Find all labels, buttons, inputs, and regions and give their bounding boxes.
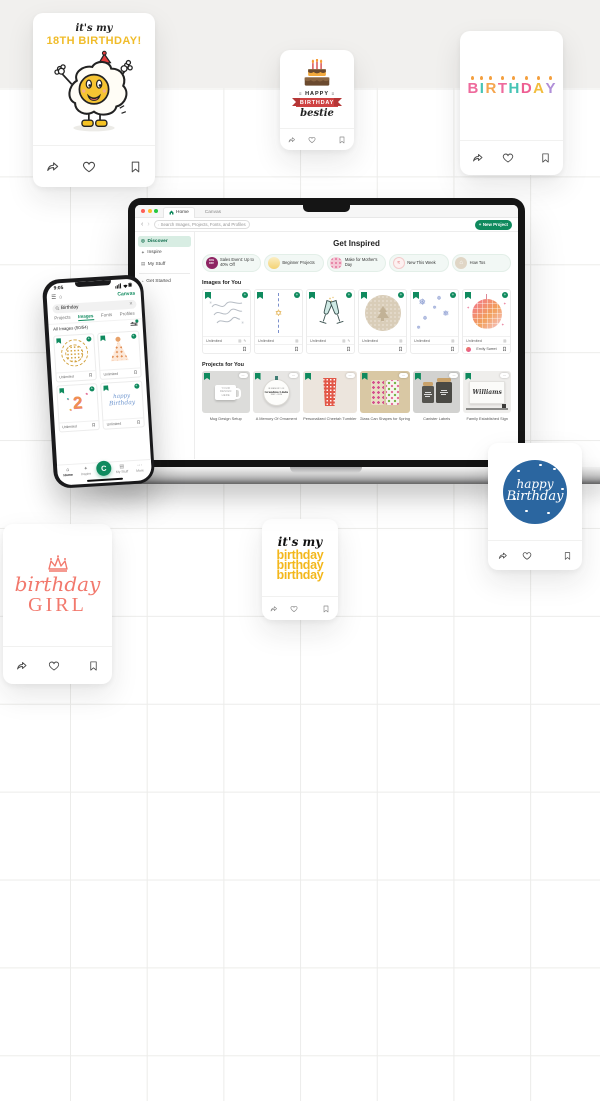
image-card-champagne-glasses[interactable]: + — [306, 289, 355, 354]
bookmark-icon[interactable] — [346, 346, 351, 352]
mug-art: YOUR DESIGN HERE — [215, 385, 236, 400]
crown-doodle — [45, 555, 71, 572]
phone-image-card-number-two[interactable]: + 2●●● Unlimited — [56, 383, 100, 432]
results-count-label: All Images (50/54) — [53, 324, 88, 331]
beginner-icon — [268, 257, 280, 269]
flower-icon — [330, 257, 342, 269]
search-input[interactable]: Search Images, Projects, Fonts, and Prof… — [154, 220, 250, 229]
birthday-cake-illustration — [296, 59, 338, 89]
bookmark-icon[interactable] — [450, 346, 455, 352]
add-icon[interactable]: + — [346, 292, 352, 298]
disco-ball-art: ✦✦✦ — [471, 297, 503, 329]
bestie-word-happy: ≡ HAPPY ≡ — [299, 91, 335, 97]
egg-card-actions — [33, 145, 155, 187]
close-window-icon — [141, 209, 145, 213]
share-icon[interactable] — [46, 160, 60, 174]
sidebar-item-my-stuff[interactable]: ▤My Stuff — [138, 259, 191, 270]
girl-card-line1: birthday — [15, 574, 101, 594]
tab-images[interactable]: Images — [78, 313, 94, 321]
ornate-script-art: ✳✳ — [208, 298, 246, 328]
add-icon[interactable]: + — [131, 333, 136, 338]
canvas-link[interactable]: Canvas — [117, 290, 135, 297]
back-arrow-icon[interactable]: ‹ — [141, 221, 143, 228]
gold-mandala-art — [60, 339, 89, 368]
ornament-art: IN MEMORY OF Grandma Linda 1942 - 2024 — [263, 379, 290, 406]
access-flag-icon — [255, 373, 261, 380]
access-flag-icon — [465, 373, 471, 380]
bookmark-icon[interactable] — [88, 372, 92, 377]
yellow-card-line1: it's my — [278, 535, 322, 549]
candles-card-art: B I R T H D A Y — [460, 31, 563, 140]
access-flag-icon — [415, 373, 421, 380]
sidebar-item-get-started[interactable]: ◔Get Started — [138, 277, 191, 288]
chip-sales-event[interactable]: 40%OFF Sales Event: Up to 40% Off — [202, 254, 261, 272]
project-badge: ⋯ — [500, 373, 509, 378]
nav-home[interactable]: ⌂Home — [60, 467, 76, 477]
new-scribble-icon: ≈ — [393, 257, 405, 269]
layer-edit-icons: ▥ ✎ — [342, 339, 351, 343]
project-card-glass-cans[interactable]: ⋯ Glass Can Shapes for Spring — [360, 371, 410, 421]
share-icon[interactable] — [16, 660, 28, 672]
inspiration-chips-row: 40%OFF Sales Event: Up to 40% Off Beginn… — [202, 254, 511, 272]
svg-text:✳: ✳ — [241, 320, 245, 325]
chip-new-this-week[interactable]: ≈ New This Week — [389, 254, 448, 272]
add-icon[interactable]: + — [134, 383, 139, 388]
share-icon[interactable] — [270, 605, 278, 613]
status-time: 9:05 — [54, 286, 64, 292]
access-flag-icon — [103, 385, 108, 391]
blue-card-actions — [488, 540, 582, 570]
add-icon[interactable]: + — [450, 292, 456, 298]
access-flag-icon — [56, 338, 61, 344]
heart-icon[interactable] — [522, 551, 532, 561]
image-card-star-banner[interactable]: + ✡ Unlimited▥ — [254, 289, 303, 354]
bookmark-icon[interactable] — [338, 136, 346, 144]
minimize-window-icon — [148, 209, 152, 213]
contributor-name: Emily Sweet — [476, 347, 496, 351]
heart-icon[interactable] — [502, 152, 514, 164]
laptop-display: Home Canvas ‹ › Search Images, Projects,… — [135, 205, 518, 460]
access-flag-icon — [59, 388, 64, 394]
bookmark-icon[interactable] — [136, 420, 140, 425]
bookmark-icon[interactable] — [563, 551, 572, 561]
card-happy-birthday-bestie: ≡ HAPPY ≡ BIRTHDAY bestie — [280, 50, 354, 150]
heart-icon[interactable] — [48, 660, 60, 672]
star-of-david-art: ✡ — [275, 308, 283, 319]
share-icon[interactable] — [288, 136, 296, 144]
access-flag-icon — [309, 292, 315, 299]
access-flag-icon — [100, 335, 105, 341]
girl-card-actions — [3, 646, 112, 684]
laptop-main-content: Get Inspired 40%OFF Sales Event: Up to 4… — [195, 232, 518, 459]
project-badge: ⋯ — [399, 373, 408, 378]
project-badge: ⋯ — [289, 373, 298, 378]
heart-icon[interactable] — [82, 160, 96, 174]
image-card-ornate-script[interactable]: + ✳✳ — [202, 289, 251, 354]
bestie-word-birthday: BIRTHDAY — [296, 98, 338, 107]
phone-screen: 9:05 ☰ ⌂ Canvas Birthday ✕ Projects Imag… — [45, 278, 151, 485]
get-inspired-title: Get Inspired — [202, 239, 511, 248]
clear-search-icon[interactable]: ✕ — [129, 301, 133, 307]
home-icon: ⌂ — [66, 468, 69, 473]
access-flag-icon — [257, 292, 263, 299]
share-icon[interactable] — [472, 152, 484, 164]
compass-icon: ◎ — [141, 239, 145, 244]
folder-icon: ▤ — [141, 262, 145, 267]
browser-nav-row: ‹ › Search Images, Projects, Fonts, and … — [135, 218, 518, 232]
tumbler-art — [322, 378, 337, 406]
laptop-camera-notch — [303, 205, 350, 212]
layer-icons: ▥ — [451, 339, 455, 343]
project-card-cheetah-tumbler[interactable]: ⋯ Personalized Cheetah Tumbler — [303, 371, 356, 421]
card-birthday-candle-letters: B I R T H D A Y — [460, 31, 563, 175]
projects-for-you-title: Projects for You — [202, 362, 511, 368]
maximize-window-icon — [154, 209, 158, 213]
access-flag-icon — [361, 292, 367, 299]
nav-inspire[interactable]: ✦Inspire — [78, 466, 94, 476]
home-icon[interactable]: ⌂ — [59, 295, 62, 300]
champagne-glasses-art — [314, 296, 348, 330]
nav-more[interactable]: ⋯More — [132, 463, 148, 473]
sidebar-divider — [139, 273, 190, 274]
chip-how-tos[interactable]: ⌂ How Tos — [452, 254, 511, 272]
new-project-fab[interactable]: C — [96, 460, 112, 476]
heart-icon[interactable] — [290, 605, 298, 613]
sparkle-icon: ✦ — [84, 467, 89, 472]
happy-birthday-script-art: happy Birthday — [108, 393, 135, 408]
doily-tree-art — [365, 295, 401, 331]
bestie-card-art: ≡ HAPPY ≡ BIRTHDAY bestie — [280, 50, 354, 128]
home-icon — [169, 210, 174, 215]
bookmark-icon[interactable] — [129, 160, 142, 174]
project-card-memory-ornament[interactable]: ⋯ IN MEMORY OF Grandma Linda 1942 - 2024… — [253, 371, 301, 421]
layer-icons: ▥ — [503, 339, 507, 343]
williams-sign-art: Williams — [469, 381, 505, 404]
blue-card-art: happy Birthday — [488, 443, 582, 540]
traffic-light-buttons[interactable] — [141, 209, 158, 213]
new-project-button[interactable]: + New Project — [475, 220, 512, 230]
phone-mockup: 9:05 ☰ ⌂ Canvas Birthday ✕ Projects Imag… — [42, 274, 156, 489]
card-birthday-girl: birthday GIRL — [3, 524, 112, 684]
nav-my-stuff[interactable]: ▤My Stuff — [114, 464, 130, 474]
project-badge: ⋯ — [346, 373, 355, 378]
svg-text:✳: ✳ — [209, 300, 213, 305]
girl-card-line2: GIRL — [28, 594, 87, 616]
phone-image-grid: + Unlimited + Unlimited + 2●●● Unlimited… — [48, 328, 148, 435]
tab-fonts[interactable]: Fonts — [101, 312, 113, 319]
girl-card-art: birthday GIRL — [3, 524, 112, 646]
layer-edit-icons: ▥ ✎ — [238, 339, 247, 343]
card-egg-birthday: it's my 18TH BIRTHDAY! — [33, 13, 155, 187]
laptop-screen-bezel: Home Canvas ‹ › Search Images, Projects,… — [128, 198, 525, 467]
images-for-you-title: Images for You — [202, 280, 511, 286]
bookmark-icon[interactable] — [398, 346, 403, 352]
blue-badge-art: happy Birthday — [503, 460, 567, 524]
tab-canvas[interactable]: Canvas — [200, 207, 226, 218]
party-hat-art — [109, 340, 128, 361]
number-two-art: 2●●● — [72, 394, 82, 412]
add-icon[interactable]: + — [242, 292, 248, 298]
bookmark-icon[interactable] — [294, 346, 299, 352]
card-its-my-birthday: it's my birthday birthday birthday — [262, 519, 338, 620]
bookmark-icon[interactable] — [133, 370, 137, 375]
chip-beginner-projects[interactable]: Beginner Projects — [264, 254, 323, 272]
layer-icons: ▥ — [295, 339, 299, 343]
bestie-word-bestie: bestie — [300, 108, 334, 119]
add-icon[interactable]: + — [294, 292, 300, 298]
layer-icons: ▥ — [399, 339, 403, 343]
add-icon[interactable]: + — [89, 386, 94, 391]
candle-letters: B I R T H D A Y — [467, 76, 555, 96]
snowflakes-art: ❅ ❅ ❅ ❅ ❅ ❅ — [415, 293, 455, 333]
bestie-card-actions — [280, 128, 354, 150]
image-card-holiday-doily[interactable]: + Unlimited▥ — [358, 289, 407, 354]
sales-badge-icon: 40%OFF — [206, 257, 218, 269]
images-for-you-row: + ✳✳ — [202, 289, 511, 354]
search-icon — [158, 223, 159, 227]
project-badge: ⋯ — [239, 373, 248, 378]
add-icon[interactable]: + — [86, 336, 91, 341]
yellow-card-art: it's my birthday birthday birthday — [262, 519, 338, 596]
access-flag-icon — [204, 373, 210, 380]
canisters-art — [422, 382, 452, 403]
access-flag-icon — [465, 292, 471, 299]
tab-profiles[interactable]: Profiles — [120, 311, 135, 318]
chip-mothers-day[interactable]: Make for Mother's Day — [327, 254, 386, 272]
house-craft-icon: ⌂ — [455, 257, 467, 269]
bookmark-icon[interactable] — [88, 660, 99, 672]
add-icon[interactable]: + — [398, 292, 404, 298]
plus-icon: + — [479, 222, 482, 227]
filter-icon[interactable] — [130, 321, 137, 327]
egg-card-line2: 18TH BIRTHDAY! — [46, 35, 141, 47]
sidebar-item-inspire[interactable]: ✦Inspire — [138, 248, 191, 259]
image-card-snowflakes[interactable]: + ❅ ❅ ❅ ❅ ❅ ❅ Unlimited▥ — [410, 289, 459, 354]
bookmark-icon[interactable] — [242, 346, 247, 352]
contributor-avatar — [466, 347, 471, 352]
phone-image-card-happy-birthday-script[interactable]: + happy Birthday Unlimited — [100, 380, 144, 429]
bookmark-icon[interactable] — [502, 346, 507, 352]
access-flag-icon — [305, 373, 311, 380]
share-icon[interactable] — [498, 551, 508, 561]
status-icons — [114, 281, 131, 288]
project-card-canister-labels[interactable]: ⋯ Canister Labels — [413, 371, 461, 421]
egg-card-line1: it's my — [76, 23, 113, 34]
card-blue-happy-birthday: happy Birthday — [488, 443, 582, 570]
bookmark-icon[interactable] — [91, 422, 95, 427]
forward-arrow-icon[interactable]: › — [147, 221, 149, 228]
yellow-card-actions — [262, 596, 338, 620]
project-badge: ⋯ — [449, 373, 458, 378]
sparkle-icon: ✦ — [141, 251, 145, 256]
egg-character-illustration — [51, 47, 137, 135]
search-icon — [55, 306, 59, 310]
glass-cans-art — [371, 380, 399, 405]
project-card-family-sign[interactable]: ⋯ Williams Family Established Sign — [463, 371, 511, 421]
phone-image-card-mandala[interactable]: + Unlimited — [53, 333, 97, 382]
tab-projects[interactable]: Projects — [54, 315, 71, 322]
phone-image-card-party-hat[interactable]: + Unlimited — [97, 330, 141, 379]
project-card-mug[interactable]: ⋯ YOUR DESIGN HERE Mug Design Setup — [202, 371, 250, 421]
bookmark-icon[interactable] — [322, 605, 330, 613]
yellow-card-line4: birthday — [277, 570, 324, 580]
candles-card-actions — [460, 140, 563, 175]
projects-for-you-row: ⋯ YOUR DESIGN HERE Mug Design Setup ⋯ IN… — [202, 371, 511, 421]
access-flag-icon — [362, 373, 368, 380]
bookmark-icon[interactable] — [540, 152, 551, 164]
heart-icon[interactable] — [308, 136, 316, 144]
sidebar-item-discover[interactable]: ◎Discover — [138, 236, 191, 247]
laptop-thumb-groove — [290, 467, 362, 473]
hamburger-menu-icon[interactable]: ☰ — [51, 295, 56, 301]
image-card-disco-ball[interactable]: + ✦✦✦ Unlimited▥ Emily Sweet — [462, 289, 511, 354]
egg-card-art: it's my 18TH BIRTHDAY! — [33, 13, 155, 145]
add-icon[interactable]: + — [502, 292, 508, 298]
tab-home[interactable]: Home — [163, 207, 195, 218]
